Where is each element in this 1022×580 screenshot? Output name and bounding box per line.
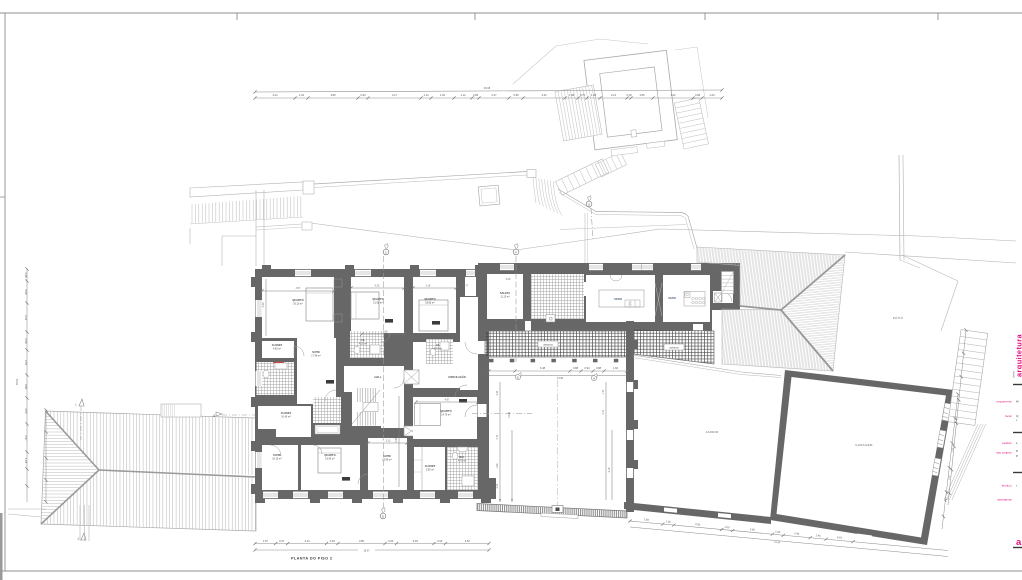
svg-text:QUARTO: QUARTO: [440, 409, 451, 413]
svg-text:3.86: 3.86: [330, 93, 336, 97]
svg-text:I.S.: I.S.: [361, 338, 365, 342]
svg-text:1.60: 1.60: [440, 93, 446, 97]
svg-text:técnico: técnico: [1002, 484, 1012, 488]
svg-text:17.40 m²: 17.40 m²: [311, 354, 321, 357]
svg-text:2.12: 2.12: [611, 93, 617, 97]
svg-text:P: P: [1016, 449, 1018, 453]
svg-text:3.57: 3.57: [296, 287, 301, 290]
svg-text:2.93: 2.93: [644, 517, 650, 522]
svg-text:1.63: 1.63: [709, 93, 715, 97]
svg-text:CLOSET: CLOSET: [272, 343, 283, 347]
svg-text:E: E: [517, 375, 519, 379]
svg-text:local: local: [1005, 414, 1012, 418]
svg-text:VAZIO: VAZIO: [668, 296, 676, 300]
svg-text:1.77: 1.77: [464, 285, 469, 288]
svg-text:2.24: 2.24: [496, 483, 499, 488]
svg-text:18.80 m²: 18.80 m²: [425, 301, 435, 304]
svg-text:Q: Q: [1016, 414, 1019, 418]
svg-text:J: J: [77, 537, 79, 541]
svg-text:W.C.: W.C.: [459, 455, 465, 459]
svg-text:0.68: 0.68: [473, 93, 479, 97]
svg-text:24.39: 24.39: [774, 541, 781, 545]
svg-text:11.10 m²: 11.10 m²: [500, 295, 509, 298]
svg-text:3.36: 3.36: [24, 272, 28, 278]
svg-text:2.47: 2.47: [491, 93, 497, 97]
svg-text:H: H: [593, 376, 595, 380]
svg-text:13.98: 13.98: [557, 377, 564, 380]
svg-text:3.19: 3.19: [608, 467, 611, 472]
svg-text:0.75: 0.75: [580, 93, 586, 97]
svg-text:2.44: 2.44: [794, 531, 800, 536]
svg-text:QUARTO: QUARTO: [292, 298, 303, 302]
svg-text:4.60 m²: 4.60 m²: [273, 347, 281, 350]
svg-text:1.67: 1.67: [263, 539, 269, 543]
svg-text:1.74: 1.74: [602, 389, 605, 394]
svg-text:2.53: 2.53: [24, 360, 28, 366]
svg-text:4.55: 4.55: [395, 437, 398, 442]
svg-text:3.42: 3.42: [541, 93, 547, 97]
svg-text:0.99: 0.99: [24, 338, 28, 344]
svg-text:s: s: [1016, 419, 1018, 422]
svg-text:3.25: 3.25: [506, 278, 511, 281]
svg-text:3.80: 3.80: [359, 539, 365, 543]
svg-text:SUITE: SUITE: [383, 454, 391, 458]
svg-text:0.18: 0.18: [626, 93, 632, 97]
svg-text:1.80: 1.80: [496, 463, 499, 468]
svg-text:F: F: [515, 250, 517, 254]
svg-text:4.36: 4.36: [695, 522, 701, 527]
svg-text:4.50: 4.50: [946, 497, 949, 502]
svg-text:1.00: 1.00: [666, 519, 672, 524]
svg-text:1.13: 1.13: [423, 93, 429, 97]
svg-text:L: L: [1016, 441, 1018, 445]
svg-text:21.60 m²: 21.60 m²: [373, 301, 383, 304]
svg-text:3.13: 3.13: [386, 440, 391, 443]
svg-text:3.18: 3.18: [426, 285, 431, 288]
svg-text:PLANTA DO PISO 2: PLANTA DO PISO 2: [291, 557, 332, 561]
svg-text:1.00: 1.00: [775, 530, 781, 535]
svg-text:3.05: 3.05: [24, 408, 28, 414]
svg-text:QUARTO: QUARTO: [424, 297, 435, 301]
svg-text:1.94: 1.94: [24, 458, 28, 464]
svg-text:JARDIM: JARDIM: [706, 430, 719, 434]
svg-text:SUITE: SUITE: [312, 350, 320, 354]
svg-text:2.71: 2.71: [602, 409, 605, 414]
svg-text:VARANDA: VARANDA: [543, 344, 553, 347]
svg-text:2.84: 2.84: [524, 294, 527, 299]
svg-text:14.70 m²: 14.70 m²: [441, 413, 451, 416]
svg-text:6.48: 6.48: [540, 366, 546, 370]
svg-text:0.68: 0.68: [695, 93, 701, 97]
svg-text:13.28: 13.28: [508, 411, 511, 418]
svg-text:0.97: 0.97: [279, 539, 285, 543]
svg-text:1.82: 1.82: [613, 366, 619, 370]
svg-text:0.88: 0.88: [596, 366, 602, 370]
svg-text:0.93: 0.93: [437, 539, 443, 543]
svg-text:1.86: 1.86: [639, 93, 645, 97]
svg-text:2.77: 2.77: [496, 434, 499, 439]
svg-text:26.10 m²: 26.10 m²: [293, 302, 303, 305]
svg-text:1.02: 1.02: [299, 93, 305, 97]
svg-text:4.91: 4.91: [837, 535, 843, 540]
svg-text:M: M: [1016, 400, 1019, 404]
svg-text:I.S.: I.S.: [436, 343, 440, 347]
svg-text:3.52: 3.52: [465, 539, 471, 543]
svg-text:18.02: 18.02: [15, 378, 19, 385]
svg-text:4.00: 4.00: [262, 302, 265, 307]
svg-text:1.08: 1.08: [591, 93, 597, 97]
svg-text:18.10 m²: 18.10 m²: [272, 457, 282, 460]
svg-text:I: I: [76, 403, 77, 407]
svg-text:0.93: 0.93: [584, 366, 590, 370]
svg-text:5.50 m²: 5.50 m²: [426, 468, 434, 471]
svg-text:3.60: 3.60: [750, 527, 756, 532]
svg-text:1.12: 1.12: [460, 93, 466, 97]
svg-text:4.70 m²: 4.70 m²: [458, 459, 466, 462]
svg-text:GARAGEM: GARAGEM: [855, 443, 873, 447]
svg-text:10.40 m²: 10.40 m²: [281, 415, 291, 418]
svg-text:4.17: 4.17: [392, 93, 398, 97]
svg-text:a: a: [1016, 537, 1022, 548]
svg-text:3.03: 3.03: [413, 539, 419, 543]
svg-text:assinatura: assinatura: [997, 498, 1012, 502]
svg-text:pedido: pedido: [1002, 441, 1012, 445]
svg-text:QUARTO: QUARTO: [324, 453, 335, 457]
svg-text:1.45: 1.45: [815, 533, 821, 538]
svg-text:0.98: 0.98: [513, 93, 519, 97]
svg-text:0.69: 0.69: [24, 289, 28, 295]
svg-text:0.97: 0.97: [24, 435, 28, 441]
svg-text:4.70 m²: 4.70 m²: [434, 347, 442, 350]
svg-text:PÁTIO: PÁTIO: [893, 316, 904, 320]
svg-text:SUITE: SUITE: [273, 453, 281, 457]
svg-text:CLOSET: CLOSET: [425, 464, 436, 468]
svg-text:18.57: 18.57: [363, 550, 370, 553]
svg-text:requerente: requerente: [997, 400, 1012, 404]
svg-text:3.41: 3.41: [24, 315, 28, 321]
svg-text:0.82: 0.82: [24, 384, 28, 390]
svg-text:QUARTO: QUARTO: [372, 297, 383, 301]
svg-text:CLOSET: CLOSET: [281, 411, 292, 415]
svg-text:VAZIO: VAZIO: [614, 297, 622, 301]
svg-text:3.14: 3.14: [305, 539, 311, 543]
svg-text:2.34: 2.34: [496, 390, 499, 395]
svg-text:36.68: 36.68: [484, 86, 491, 90]
svg-text:HALL: HALL: [375, 375, 382, 379]
svg-text:16.90 m²: 16.90 m²: [325, 457, 335, 460]
svg-text:0.93: 0.93: [330, 539, 336, 543]
svg-text:P: P: [1016, 454, 1018, 458]
svg-text:1.08: 1.08: [569, 93, 575, 97]
svg-text:0.93: 0.93: [360, 93, 366, 97]
svg-text:4.25 m²: 4.25 m²: [359, 342, 367, 345]
svg-text:4.97: 4.97: [445, 399, 450, 402]
svg-text:0.88: 0.88: [573, 366, 579, 370]
svg-text:SALETA: SALETA: [500, 291, 510, 295]
svg-text:1.00: 1.00: [724, 525, 730, 530]
svg-text:0.93: 0.93: [388, 539, 394, 543]
svg-text:4.25: 4.25: [375, 285, 380, 288]
svg-text:tipo projeto: tipo projeto: [996, 451, 1012, 455]
svg-text:arquitetura: arquitetura: [1015, 334, 1022, 377]
svg-text:3.24: 3.24: [272, 93, 278, 97]
svg-text:VARANDA: VARANDA: [669, 347, 679, 350]
svg-text:r: r: [1016, 484, 1017, 488]
svg-text:3.22: 3.22: [670, 93, 676, 97]
